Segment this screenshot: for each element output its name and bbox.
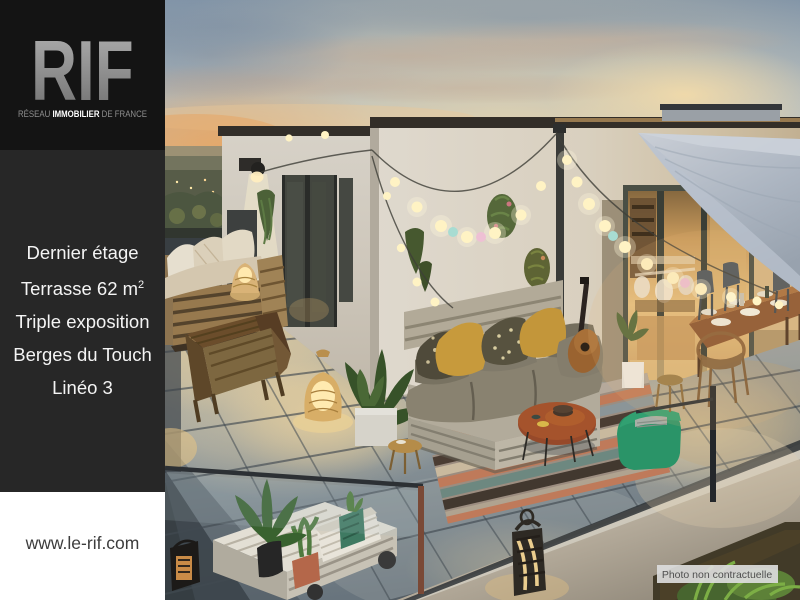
svg-text:Photo non contractuelle: Photo non contractuelle — [662, 569, 772, 581]
svg-text:RIF: RIF — [31, 23, 134, 118]
svg-text:RÉSEAU IMMOBILIER DE FRANCE: RÉSEAU IMMOBILIER DE FRANCE — [18, 109, 147, 119]
